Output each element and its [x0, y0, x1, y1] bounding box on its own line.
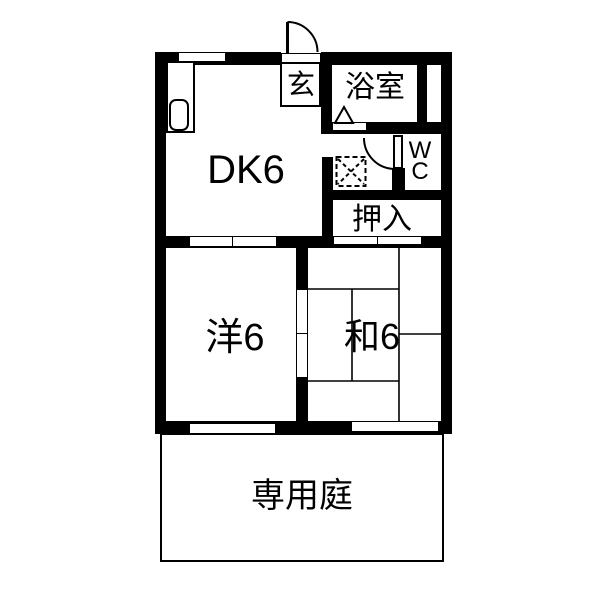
dining-kitchen-label: DK6 — [207, 150, 285, 190]
kitchen-sink — [169, 99, 189, 131]
floor-plan: 玄 浴室 W C DK6 押入 洋6 和6 専用庭 — [0, 0, 600, 600]
western-room-label: 洋6 — [205, 319, 264, 357]
wall-closet-top — [330, 190, 452, 200]
room-sliding-door-lower — [296, 333, 308, 378]
closet-fusuma-east — [377, 236, 422, 245]
wc-door-arc — [364, 138, 395, 169]
bath-step-triangle — [335, 107, 353, 123]
wall-bath-right — [417, 65, 427, 123]
washing-machine-space — [337, 157, 366, 186]
wall-entrance-bath-divider — [321, 62, 332, 130]
garden-label: 専用庭 — [251, 479, 353, 513]
bath-step — [332, 122, 367, 131]
window-bottom-west — [189, 423, 276, 434]
bathroom-label: 浴室 — [345, 73, 405, 103]
sliding-door-dk-east — [232, 236, 277, 247]
closet-label: 押入 — [352, 205, 412, 235]
entrance-door-arc — [288, 22, 318, 52]
window-bottom-east — [351, 421, 439, 432]
entrance-label: 玄 — [287, 71, 315, 99]
toilet-label-line2: C — [411, 158, 428, 185]
room-sliding-door-upper — [296, 289, 308, 334]
wc-door-leaf — [393, 135, 403, 169]
wall-dk-right — [322, 157, 333, 248]
japanese-room-label: 和6 — [344, 319, 400, 355]
closet-fusuma-west — [333, 236, 378, 245]
sliding-door-dk-west — [189, 236, 233, 247]
wall-top-right — [321, 52, 452, 65]
toilet-label: W C — [409, 140, 432, 182]
